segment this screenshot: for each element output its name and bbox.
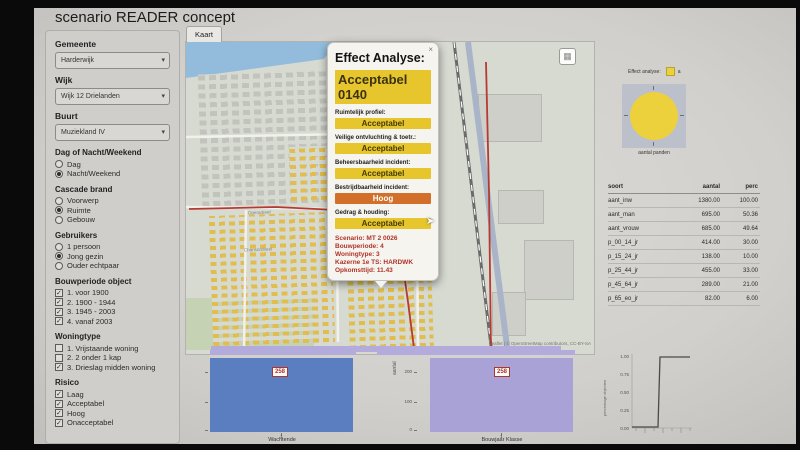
sidebar-panel: Gemeente Harderwijk ▾ Wijk Wijk 12 Driel… — [45, 30, 180, 444]
checkbox-icon — [55, 390, 63, 398]
x-axis-label: Wachtende — [232, 437, 332, 443]
radio-dag[interactable]: Dag — [55, 160, 170, 168]
effect-analyse-popup: × Effect Analyse: Acceptabel 0140 Ruimte… — [327, 42, 439, 281]
map-edge-strip — [377, 350, 575, 355]
svg-text:0.50: 0.50 — [620, 390, 629, 395]
popup-title: Effect Analyse: — [335, 51, 431, 65]
popup-details: Scenario: MT 2 0026 Bouwperiode: 4 Wonin… — [335, 235, 431, 275]
radio-icon — [55, 170, 63, 178]
metric-label: Gedrag & houding: — [335, 210, 431, 216]
popup-tip — [375, 281, 387, 288]
checkbox-icon — [55, 354, 63, 362]
checkbox-voor-1900[interactable]: 1. voor 1900 — [55, 289, 170, 297]
pie-tick — [680, 115, 684, 116]
metric-bar: Acceptabel — [335, 118, 431, 129]
radio-icon — [55, 206, 63, 214]
risico-heading: Risico — [55, 378, 170, 387]
street-label: Chansondreef — [244, 247, 272, 253]
wijk-select[interactable]: Wijk 12 Drielanden ▾ — [55, 88, 170, 105]
svg-text:0.25: 0.25 — [620, 408, 629, 413]
radio-icon — [55, 216, 63, 224]
bezel — [796, 0, 800, 450]
ecdf-y-axis-label: percentage objecten — [602, 380, 607, 416]
pie-caption: aantal panden — [622, 150, 686, 156]
popup-headline: Acceptabel 0140 — [335, 70, 431, 104]
metric-bar: Acceptabel — [335, 218, 431, 229]
wijk-label: Wijk — [55, 76, 170, 85]
buurt-select[interactable]: Muziekland IV ▾ — [55, 124, 170, 141]
bar-value-label: 258 — [272, 367, 288, 377]
table-row: p_25_44_jr 455.00 33.00 — [608, 264, 760, 278]
table-row: p_45_64_jr 289.00 21.00 — [608, 278, 760, 292]
legend-swatch — [666, 67, 675, 76]
checkbox-drieslag-midden-woning[interactable]: 3. Drieslag midden woning — [55, 363, 170, 371]
radio-icon — [55, 197, 63, 205]
bezel — [0, 0, 34, 450]
effect-analyse-legend: Effect analyse: a — [628, 67, 681, 76]
checkbox-icon — [55, 344, 63, 352]
checkbox-onacceptabel[interactable]: Onacceptabel — [55, 419, 170, 427]
pie-chart-panel — [622, 84, 686, 148]
radio-1-persoon[interactable]: 1 persoon — [55, 243, 170, 251]
gemeente-select[interactable]: Harderwijk ▾ — [55, 52, 170, 69]
kazerne-line: Kazerne 1e TS: HARDWK — [335, 259, 431, 267]
bouwperiode-line: Bouwperiode: 4 — [335, 243, 431, 251]
legend-label: Effect analyse: — [628, 69, 661, 75]
checkbox-laag[interactable]: Laag — [55, 390, 170, 398]
bouwperiode-heading: Bouwperiode object — [55, 277, 170, 286]
chevron-down-icon: ▾ — [161, 125, 165, 140]
checkbox-vanaf-2003[interactable]: 4. vanaf 2003 — [55, 317, 170, 325]
radio-icon — [55, 262, 63, 270]
dag-nacht-heading: Dag of Nacht/Weekend — [55, 148, 170, 157]
table-row: p_65_eo_jr 82.00 6.00 — [608, 292, 760, 306]
svg-text:0.75: 0.75 — [620, 372, 629, 377]
checkbox-2-onder-1-kap[interactable]: 2. 2 onder 1 kap — [55, 354, 170, 362]
app-screen: scenario READER concept Gemeente Harderw… — [0, 0, 800, 450]
metric-label: Bestrijdbaarheid incident: — [335, 185, 431, 191]
radio-icon — [55, 252, 63, 260]
radio-icon — [55, 243, 63, 251]
bezel — [0, 0, 800, 8]
metric-bar: Acceptabel — [335, 143, 431, 154]
radio-ouder-echtpaar[interactable]: Ouder echtpaar — [55, 262, 170, 270]
checkbox-icon — [55, 317, 63, 325]
table-header-row: soort aantal perc — [608, 180, 760, 194]
radio-ruimte[interactable]: Ruimte — [55, 206, 170, 214]
checkbox-icon — [55, 363, 63, 371]
svg-text:1.00: 1.00 — [620, 354, 629, 359]
table-row: p_00_14_jr 414.00 30.00 — [608, 236, 760, 250]
buurt-value: Muziekland IV — [61, 129, 105, 136]
radio-voorwerp[interactable]: Voorwerp — [55, 197, 170, 205]
pie-chart — [630, 92, 678, 140]
buurt-label: Buurt — [55, 112, 170, 121]
ecdf-chart: percentage objecten 1.000.75 0.500.250.0… — [598, 346, 798, 446]
y-axis-label: aantal — [392, 361, 398, 375]
checkbox-hoog[interactable]: Hoog — [55, 409, 170, 417]
layers-control-icon[interactable]: ▦ — [559, 48, 576, 65]
woningtype-heading: Woningtype — [55, 332, 170, 341]
checkbox-icon — [55, 298, 63, 306]
checkbox-icon — [55, 289, 63, 297]
axis-tick — [205, 402, 208, 403]
results-table: soort aantal perc aant_inw 1380.00 100.0… — [608, 180, 760, 306]
ecdf-step-curve — [632, 357, 690, 427]
map-edge-strip — [210, 350, 356, 355]
table-row: aant_vrouw 685.00 49.64 — [608, 222, 760, 236]
checkbox-icon — [55, 409, 63, 417]
ecdf-y-ticks: 1.000.75 0.500.250.00 — [620, 354, 629, 431]
map-attribution: Leaflet | © OpenStreetMap contributors, … — [489, 341, 591, 346]
table-row: aant_inw 1380.00 100.00 — [608, 194, 760, 208]
gemeente-value: Harderwijk — [61, 57, 94, 64]
bezel — [0, 444, 800, 450]
checkbox-acceptabel[interactable]: Acceptabel — [55, 400, 170, 408]
close-icon[interactable]: × — [428, 45, 433, 54]
metric-bar: Acceptabel — [335, 168, 431, 179]
tab-kaart[interactable]: Kaart — [186, 26, 222, 42]
checkbox-icon — [55, 419, 63, 427]
checkbox-1900-1944[interactable]: 2. 1900 - 1944 — [55, 298, 170, 306]
x-axis-label: Bouwjaar Klasse — [452, 437, 552, 443]
street-label: Operadreef — [248, 210, 271, 216]
bar-value-label: 258 — [494, 367, 510, 377]
legend-item: a — [678, 69, 681, 75]
pie-tick — [624, 115, 628, 116]
radio-gebouw[interactable]: Gebouw — [55, 216, 170, 224]
pie-tick — [653, 86, 654, 90]
page-title: scenario READER concept — [55, 9, 235, 26]
metric-label: Ruimtelijk profiel: — [335, 110, 431, 116]
woningtype-line: Woningtype: 3 — [335, 251, 431, 259]
metric-label: Beheersbaarheid incident: — [335, 160, 431, 166]
wijk-value: Wijk 12 Drielanden — [61, 93, 120, 100]
axis-tick — [205, 372, 208, 373]
checkbox-icon — [55, 308, 63, 316]
chevron-down-icon: ▾ — [161, 53, 165, 68]
checkbox-vrijstaande-woning[interactable]: 1. Vrijstaande woning — [55, 344, 170, 352]
metric-label: Veilige ontvluchting & toetr.: — [335, 135, 431, 141]
photo-frame: scenario READER concept Gemeente Harderw… — [0, 0, 800, 450]
ecdf-x-ticks — [636, 428, 690, 433]
metric-bar: Hoog — [335, 193, 431, 204]
cascade-brand-heading: Cascade brand — [55, 185, 170, 194]
svg-text:0.00: 0.00 — [620, 426, 629, 431]
table-row: aant_man 695.00 50.36 — [608, 208, 760, 222]
chevron-down-icon: ▾ — [161, 89, 165, 104]
radio-icon — [55, 160, 63, 168]
pie-tick — [653, 142, 654, 146]
gemeente-label: Gemeente — [55, 40, 170, 49]
checkbox-icon — [55, 400, 63, 408]
table-row: p_15_24_jr 138.00 10.00 — [608, 250, 760, 264]
radio-nacht-weekend[interactable]: Nacht/Weekend — [55, 170, 170, 178]
axis-tick — [205, 430, 208, 431]
scenario-line: Scenario: MT 2 0026 — [335, 235, 431, 243]
gebruikers-heading: Gebruikers — [55, 231, 170, 240]
radio-jong-gezin[interactable]: Jong gezin — [55, 252, 170, 260]
opkomsttijd-line: Opkomsttijd: 11.43 — [335, 267, 431, 275]
mouse-cursor: ➤ — [426, 216, 434, 227]
checkbox-1945-2003[interactable]: 3. 1945 - 2003 — [55, 308, 170, 316]
